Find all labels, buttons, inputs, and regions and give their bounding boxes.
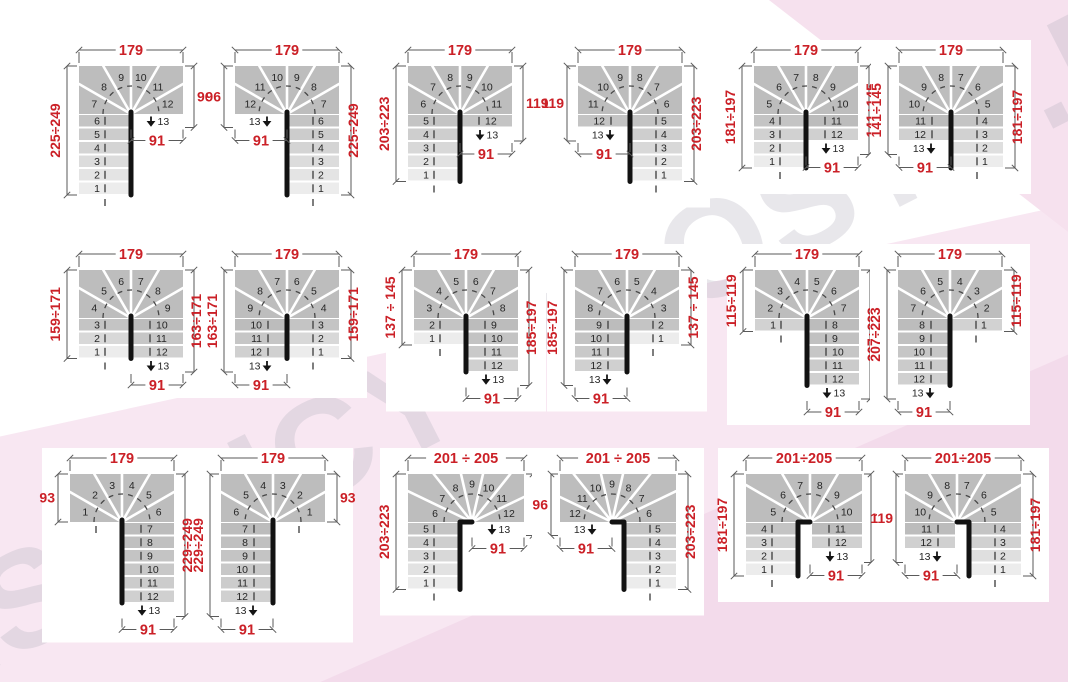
svg-text:119: 119 — [541, 95, 564, 111]
svg-text:7: 7 — [654, 82, 660, 94]
svg-text:4: 4 — [651, 286, 657, 298]
staircase-plan: 54321126789101113179203÷22311991 — [370, 36, 550, 236]
svg-text:11: 11 — [147, 578, 158, 590]
svg-text:1: 1 — [94, 347, 100, 359]
svg-text:3: 3 — [280, 480, 286, 492]
svg-text:9: 9 — [832, 333, 838, 345]
svg-text:8: 8 — [155, 286, 161, 298]
svg-text:179: 179 — [261, 451, 285, 467]
svg-text:181÷197: 181÷197 — [716, 498, 730, 553]
staircase-plan: 32110111245678913179159÷171163÷17191 — [197, 240, 377, 440]
svg-text:6: 6 — [920, 286, 926, 298]
svg-text:2: 2 — [658, 320, 664, 332]
svg-text:5: 5 — [311, 286, 317, 298]
svg-text:10: 10 — [147, 564, 159, 576]
svg-text:2: 2 — [297, 490, 303, 502]
svg-text:10: 10 — [483, 482, 495, 494]
svg-text:13: 13 — [493, 374, 505, 386]
svg-text:3: 3 — [974, 286, 980, 298]
svg-text:4: 4 — [794, 276, 800, 288]
svg-text:2: 2 — [318, 170, 324, 182]
svg-text:1: 1 — [981, 320, 987, 332]
svg-text:3: 3 — [777, 286, 783, 298]
staircase-diagram-2: 65432178910111213179225÷2499691 — [197, 36, 377, 236]
svg-text:12: 12 — [485, 116, 497, 128]
svg-text:9: 9 — [596, 320, 602, 332]
svg-text:7: 7 — [490, 286, 496, 298]
svg-text:1: 1 — [423, 578, 429, 590]
staircase-diagram-6: 43211112567891013179181÷197141÷14591 — [861, 36, 1041, 236]
svg-text:3: 3 — [1000, 537, 1006, 549]
staircase-diagram-12: 18910111223456713179115÷119207÷22391 — [860, 240, 1040, 440]
svg-text:13: 13 — [919, 551, 931, 563]
svg-text:3: 3 — [109, 480, 115, 492]
svg-text:9: 9 — [830, 82, 836, 94]
svg-text:12: 12 — [156, 347, 168, 359]
svg-text:6: 6 — [646, 508, 652, 520]
svg-text:179: 179 — [794, 43, 818, 59]
svg-text:91: 91 — [593, 392, 609, 408]
svg-text:179: 179 — [119, 247, 143, 263]
svg-text:6: 6 — [780, 490, 786, 502]
svg-text:4: 4 — [423, 129, 429, 141]
svg-text:3: 3 — [94, 320, 100, 332]
svg-text:7: 7 — [958, 72, 964, 84]
svg-text:12: 12 — [491, 360, 503, 372]
svg-text:5: 5 — [655, 524, 661, 536]
staircase-diagram-3: 54321126789101113179203÷22311991 — [370, 36, 550, 236]
svg-text:91: 91 — [149, 134, 165, 150]
svg-text:6: 6 — [233, 507, 239, 519]
svg-text:5: 5 — [661, 116, 667, 128]
svg-text:2: 2 — [423, 156, 429, 168]
svg-text:5: 5 — [423, 116, 429, 128]
svg-text:12: 12 — [920, 537, 932, 549]
svg-text:2: 2 — [429, 320, 435, 332]
svg-text:91: 91 — [253, 134, 269, 150]
svg-text:12: 12 — [590, 360, 602, 372]
svg-text:225÷249: 225÷249 — [345, 103, 361, 158]
staircase-plan: 54321678910111213201 ÷ 205203÷2239691 — [526, 444, 706, 644]
staircase-plan: 65432178910111213179225÷2499691 — [41, 36, 221, 236]
svg-text:91: 91 — [490, 542, 506, 558]
svg-text:91: 91 — [825, 405, 841, 421]
svg-text:13: 13 — [574, 524, 586, 536]
svg-text:13: 13 — [149, 605, 161, 617]
svg-text:9: 9 — [467, 72, 473, 84]
svg-text:9: 9 — [294, 72, 300, 84]
svg-text:12: 12 — [503, 508, 515, 520]
svg-text:4: 4 — [318, 143, 324, 155]
svg-text:5: 5 — [985, 99, 991, 111]
svg-text:229÷249: 229÷249 — [190, 518, 206, 573]
svg-text:159÷171: 159÷171 — [345, 287, 361, 342]
svg-text:9: 9 — [919, 333, 925, 345]
svg-text:3: 3 — [769, 129, 775, 141]
svg-text:10: 10 — [135, 72, 147, 84]
svg-text:5: 5 — [814, 276, 820, 288]
svg-text:5: 5 — [937, 276, 943, 288]
svg-text:3: 3 — [655, 551, 661, 563]
svg-text:11: 11 — [255, 82, 266, 94]
svg-text:1: 1 — [82, 507, 88, 519]
svg-text:8: 8 — [147, 537, 153, 549]
svg-text:3: 3 — [318, 156, 324, 168]
svg-text:13: 13 — [913, 143, 925, 155]
svg-text:179: 179 — [454, 247, 478, 263]
svg-text:115÷119: 115÷119 — [1008, 274, 1024, 327]
svg-text:179: 179 — [119, 43, 143, 59]
svg-text:181÷197: 181÷197 — [722, 90, 738, 145]
svg-text:5: 5 — [453, 276, 459, 288]
svg-text:12: 12 — [250, 347, 262, 359]
svg-text:4: 4 — [94, 143, 100, 155]
svg-text:4: 4 — [1000, 524, 1006, 536]
svg-text:9: 9 — [927, 490, 933, 502]
svg-text:10: 10 — [250, 320, 262, 332]
staircase-plan: 18910111223456713179115÷119207÷22391 — [860, 240, 1040, 440]
svg-text:3: 3 — [94, 156, 100, 168]
staircase-diagram-14: 7891011121234561317993229÷24991 — [183, 444, 363, 644]
staircase-diagram-9: 21910111234567813179137 ÷ 145185÷19791 — [376, 240, 556, 440]
svg-text:1: 1 — [318, 347, 324, 359]
svg-text:3: 3 — [761, 537, 767, 549]
svg-text:5: 5 — [243, 490, 249, 502]
svg-text:13: 13 — [487, 130, 499, 142]
svg-text:2: 2 — [94, 170, 100, 182]
svg-text:3: 3 — [423, 551, 429, 563]
svg-text:7: 7 — [639, 493, 645, 505]
staircase-plan: 43211112567891013201÷205181÷19711991 — [871, 444, 1051, 644]
svg-text:4: 4 — [655, 537, 661, 549]
svg-text:10: 10 — [491, 333, 503, 345]
staircase-plan: 54321126789101113179203÷22311991 — [540, 36, 720, 236]
svg-text:5: 5 — [770, 507, 776, 519]
svg-text:5: 5 — [423, 524, 429, 536]
svg-text:11: 11 — [496, 493, 507, 505]
svg-text:7: 7 — [793, 72, 799, 84]
svg-text:11: 11 — [491, 347, 502, 359]
staircase-catalog-sheet: LESTNICY-PROSTO.RU 654321789101112131792… — [0, 0, 1068, 682]
svg-text:10: 10 — [481, 82, 493, 94]
svg-text:179: 179 — [618, 43, 642, 59]
svg-text:3: 3 — [661, 143, 667, 155]
svg-text:201÷205: 201÷205 — [935, 451, 991, 467]
svg-text:5: 5 — [766, 99, 772, 111]
staircase-diagram-8: 32110111245678913179159÷171163÷17191 — [197, 240, 377, 440]
svg-text:203÷223: 203÷223 — [682, 504, 698, 559]
svg-text:93: 93 — [340, 490, 356, 506]
svg-text:12: 12 — [569, 508, 581, 520]
svg-text:12: 12 — [831, 129, 843, 141]
svg-text:91: 91 — [478, 147, 494, 163]
svg-text:12: 12 — [835, 537, 847, 549]
svg-text:9: 9 — [247, 303, 253, 315]
svg-text:91: 91 — [578, 542, 594, 558]
svg-text:1: 1 — [1000, 564, 1006, 576]
svg-text:91: 91 — [917, 161, 933, 177]
svg-text:5: 5 — [94, 129, 100, 141]
svg-text:13: 13 — [834, 388, 846, 400]
svg-text:12: 12 — [236, 591, 248, 603]
svg-text:203÷223: 203÷223 — [378, 504, 392, 559]
svg-text:7: 7 — [138, 276, 144, 288]
svg-text:8: 8 — [311, 82, 317, 94]
svg-text:179: 179 — [275, 43, 299, 59]
svg-text:181÷197: 181÷197 — [1009, 90, 1025, 145]
svg-text:1: 1 — [661, 170, 667, 182]
svg-text:2: 2 — [767, 303, 773, 315]
svg-text:8: 8 — [242, 537, 248, 549]
svg-text:91: 91 — [828, 569, 844, 585]
svg-text:179: 179 — [795, 247, 819, 263]
svg-text:1: 1 — [770, 320, 776, 332]
staircase-plan: 65432178910111213179225÷2499691 — [197, 36, 377, 236]
svg-text:10: 10 — [832, 347, 844, 359]
staircase-diagram-16: 54321678910111213201 ÷ 205203÷2239691 — [526, 444, 706, 644]
svg-text:91: 91 — [149, 378, 165, 394]
svg-text:10: 10 — [841, 507, 853, 519]
svg-text:9: 9 — [165, 303, 171, 315]
svg-text:201÷205: 201÷205 — [776, 451, 832, 467]
svg-text:91: 91 — [824, 161, 840, 177]
svg-text:6: 6 — [156, 507, 162, 519]
svg-text:1: 1 — [318, 183, 324, 195]
svg-text:203÷223: 203÷223 — [376, 96, 392, 151]
staircase-plan: 21910111234567813179137 ÷ 145185÷19791 — [376, 240, 556, 440]
svg-text:179: 179 — [275, 247, 299, 263]
svg-text:225÷249: 225÷249 — [47, 103, 63, 158]
svg-text:4: 4 — [129, 480, 135, 492]
svg-text:8: 8 — [944, 480, 950, 492]
svg-text:1: 1 — [982, 156, 988, 168]
svg-text:4: 4 — [661, 129, 667, 141]
svg-text:10: 10 — [590, 482, 602, 494]
svg-text:4: 4 — [260, 480, 266, 492]
svg-text:8: 8 — [832, 320, 838, 332]
svg-text:91: 91 — [253, 378, 269, 394]
svg-text:2: 2 — [92, 490, 98, 502]
svg-text:10: 10 — [837, 99, 849, 111]
svg-text:9: 9 — [491, 320, 497, 332]
svg-text:4: 4 — [982, 116, 988, 128]
svg-text:8: 8 — [500, 303, 506, 315]
svg-text:8: 8 — [919, 320, 925, 332]
svg-text:5: 5 — [146, 490, 152, 502]
svg-text:137 ÷ 145: 137 ÷ 145 — [382, 276, 398, 338]
svg-text:179: 179 — [110, 451, 134, 467]
svg-text:1: 1 — [94, 183, 100, 195]
staircase-diagram-7: 32110111245678913179159÷171163÷17191 — [41, 240, 221, 440]
svg-text:141÷145: 141÷145 — [868, 83, 884, 138]
svg-text:13: 13 — [833, 143, 845, 155]
svg-text:4: 4 — [91, 303, 97, 315]
svg-text:12: 12 — [913, 374, 925, 386]
svg-text:10: 10 — [271, 72, 283, 84]
svg-text:2: 2 — [1000, 551, 1006, 563]
svg-text:11: 11 — [491, 99, 502, 111]
svg-text:1: 1 — [423, 170, 429, 182]
svg-text:6: 6 — [975, 82, 981, 94]
svg-text:10: 10 — [914, 507, 926, 519]
svg-text:9: 9 — [617, 72, 623, 84]
svg-text:6: 6 — [776, 82, 782, 94]
staircase-diagram-4: 54321126789101113179203÷22311991 — [540, 36, 720, 236]
svg-text:91: 91 — [923, 569, 939, 585]
svg-text:13: 13 — [592, 130, 604, 142]
svg-text:5: 5 — [991, 507, 997, 519]
svg-text:10: 10 — [590, 333, 602, 345]
svg-text:207÷223: 207÷223 — [867, 307, 883, 362]
svg-text:12: 12 — [244, 99, 256, 111]
svg-text:201 ÷ 205: 201 ÷ 205 — [586, 451, 650, 467]
svg-text:7: 7 — [274, 276, 280, 288]
svg-text:9: 9 — [834, 490, 840, 502]
svg-text:7: 7 — [91, 99, 97, 111]
staircase-diagram-1: 65432178910111213179225÷2499691 — [41, 36, 221, 236]
svg-text:6: 6 — [473, 276, 479, 288]
svg-text:11: 11 — [251, 333, 262, 345]
svg-text:3: 3 — [423, 143, 429, 155]
svg-text:6: 6 — [94, 116, 100, 128]
svg-text:8: 8 — [101, 82, 107, 94]
svg-text:2: 2 — [94, 333, 100, 345]
svg-text:7: 7 — [439, 493, 445, 505]
svg-text:179: 179 — [448, 43, 472, 59]
svg-text:8: 8 — [637, 72, 643, 84]
svg-text:9: 9 — [242, 551, 248, 563]
svg-text:8: 8 — [626, 482, 632, 494]
svg-text:7: 7 — [597, 286, 603, 298]
staircase-plan: 21910111234567813179137 ÷ 145185÷19791 — [537, 240, 717, 440]
svg-text:13: 13 — [589, 374, 601, 386]
svg-text:13: 13 — [235, 605, 247, 617]
svg-text:6: 6 — [664, 99, 670, 111]
svg-text:4: 4 — [769, 116, 775, 128]
svg-text:9: 9 — [118, 72, 124, 84]
svg-text:12: 12 — [914, 129, 926, 141]
svg-text:201 ÷ 205: 201 ÷ 205 — [434, 451, 498, 467]
staircase-diagram-10: 21910111234567813179137 ÷ 145185÷19791 — [537, 240, 717, 440]
svg-text:7: 7 — [964, 480, 970, 492]
staircase-diagram-18: 43211112567891013201÷205181÷19711991 — [871, 444, 1051, 644]
svg-text:11: 11 — [914, 360, 925, 372]
svg-text:7: 7 — [797, 480, 803, 492]
svg-text:6: 6 — [981, 490, 987, 502]
svg-text:159÷171: 159÷171 — [47, 287, 63, 342]
svg-text:5: 5 — [634, 276, 640, 288]
svg-text:11: 11 — [915, 116, 926, 128]
svg-text:1: 1 — [658, 333, 664, 345]
svg-text:2: 2 — [318, 333, 324, 345]
svg-text:179: 179 — [615, 247, 639, 263]
svg-text:11: 11 — [237, 578, 248, 590]
svg-text:11: 11 — [832, 360, 843, 372]
svg-text:10: 10 — [236, 564, 248, 576]
svg-text:13: 13 — [158, 116, 170, 128]
svg-text:11: 11 — [831, 116, 842, 128]
svg-text:137 ÷ 145: 137 ÷ 145 — [685, 276, 701, 338]
svg-text:163÷171: 163÷171 — [204, 294, 220, 349]
svg-text:12: 12 — [162, 99, 174, 111]
svg-text:2: 2 — [661, 156, 667, 168]
svg-text:179: 179 — [939, 43, 963, 59]
staircase-plan: 32110111245678913179159÷171163÷17191 — [41, 240, 221, 440]
svg-text:2: 2 — [655, 564, 661, 576]
svg-text:2: 2 — [982, 143, 988, 155]
svg-text:4: 4 — [436, 286, 442, 298]
svg-text:96: 96 — [532, 496, 548, 512]
svg-text:91: 91 — [596, 147, 612, 163]
svg-text:93: 93 — [39, 490, 55, 506]
svg-text:11: 11 — [835, 524, 846, 536]
svg-text:12: 12 — [593, 116, 605, 128]
svg-text:1: 1 — [761, 564, 767, 576]
svg-text:6: 6 — [294, 276, 300, 288]
svg-text:3: 3 — [661, 303, 667, 315]
svg-text:8: 8 — [587, 303, 593, 315]
svg-text:11: 11 — [152, 82, 163, 94]
svg-text:3: 3 — [982, 129, 988, 141]
svg-text:2: 2 — [984, 303, 990, 315]
svg-text:11: 11 — [921, 524, 932, 536]
svg-text:10: 10 — [913, 347, 925, 359]
svg-text:6: 6 — [118, 276, 124, 288]
svg-text:8: 8 — [453, 482, 459, 494]
svg-text:6: 6 — [318, 116, 324, 128]
svg-text:1: 1 — [769, 156, 775, 168]
svg-text:4: 4 — [957, 276, 963, 288]
svg-text:3: 3 — [426, 303, 432, 315]
svg-text:91: 91 — [239, 623, 255, 639]
svg-text:10: 10 — [597, 82, 609, 94]
staircase-diagram-17: 43211112567891013201÷205181÷19711991 — [716, 444, 896, 644]
svg-text:179: 179 — [938, 247, 962, 263]
svg-text:10: 10 — [156, 320, 168, 332]
svg-text:7: 7 — [147, 524, 153, 536]
svg-text:1: 1 — [307, 507, 313, 519]
svg-text:10: 10 — [908, 99, 920, 111]
svg-text:2: 2 — [761, 551, 767, 563]
svg-text:96: 96 — [205, 88, 221, 104]
staircase-plan: 43211112567891013179181÷197141÷14591 — [861, 36, 1041, 236]
svg-text:6: 6 — [831, 286, 837, 298]
svg-text:9: 9 — [469, 479, 475, 491]
svg-text:2: 2 — [769, 143, 775, 155]
svg-text:7: 7 — [430, 82, 436, 94]
svg-text:11: 11 — [591, 347, 602, 359]
svg-text:8: 8 — [257, 286, 263, 298]
svg-text:7: 7 — [242, 524, 248, 536]
svg-text:12: 12 — [832, 374, 844, 386]
svg-text:2: 2 — [423, 564, 429, 576]
svg-text:7: 7 — [841, 303, 847, 315]
staircase-plan: 43211112567891013201÷205181÷19711991 — [716, 444, 896, 644]
svg-text:11: 11 — [156, 333, 167, 345]
svg-text:13: 13 — [837, 551, 849, 563]
svg-text:8: 8 — [938, 72, 944, 84]
svg-text:3: 3 — [318, 320, 324, 332]
svg-text:11: 11 — [588, 99, 599, 111]
svg-text:4: 4 — [321, 303, 327, 315]
svg-text:5: 5 — [318, 129, 324, 141]
svg-text:8: 8 — [813, 72, 819, 84]
svg-text:119: 119 — [871, 510, 893, 526]
svg-text:8: 8 — [447, 72, 453, 84]
svg-text:9: 9 — [609, 479, 615, 491]
svg-text:185÷197: 185÷197 — [544, 300, 560, 355]
svg-text:91: 91 — [484, 392, 500, 408]
